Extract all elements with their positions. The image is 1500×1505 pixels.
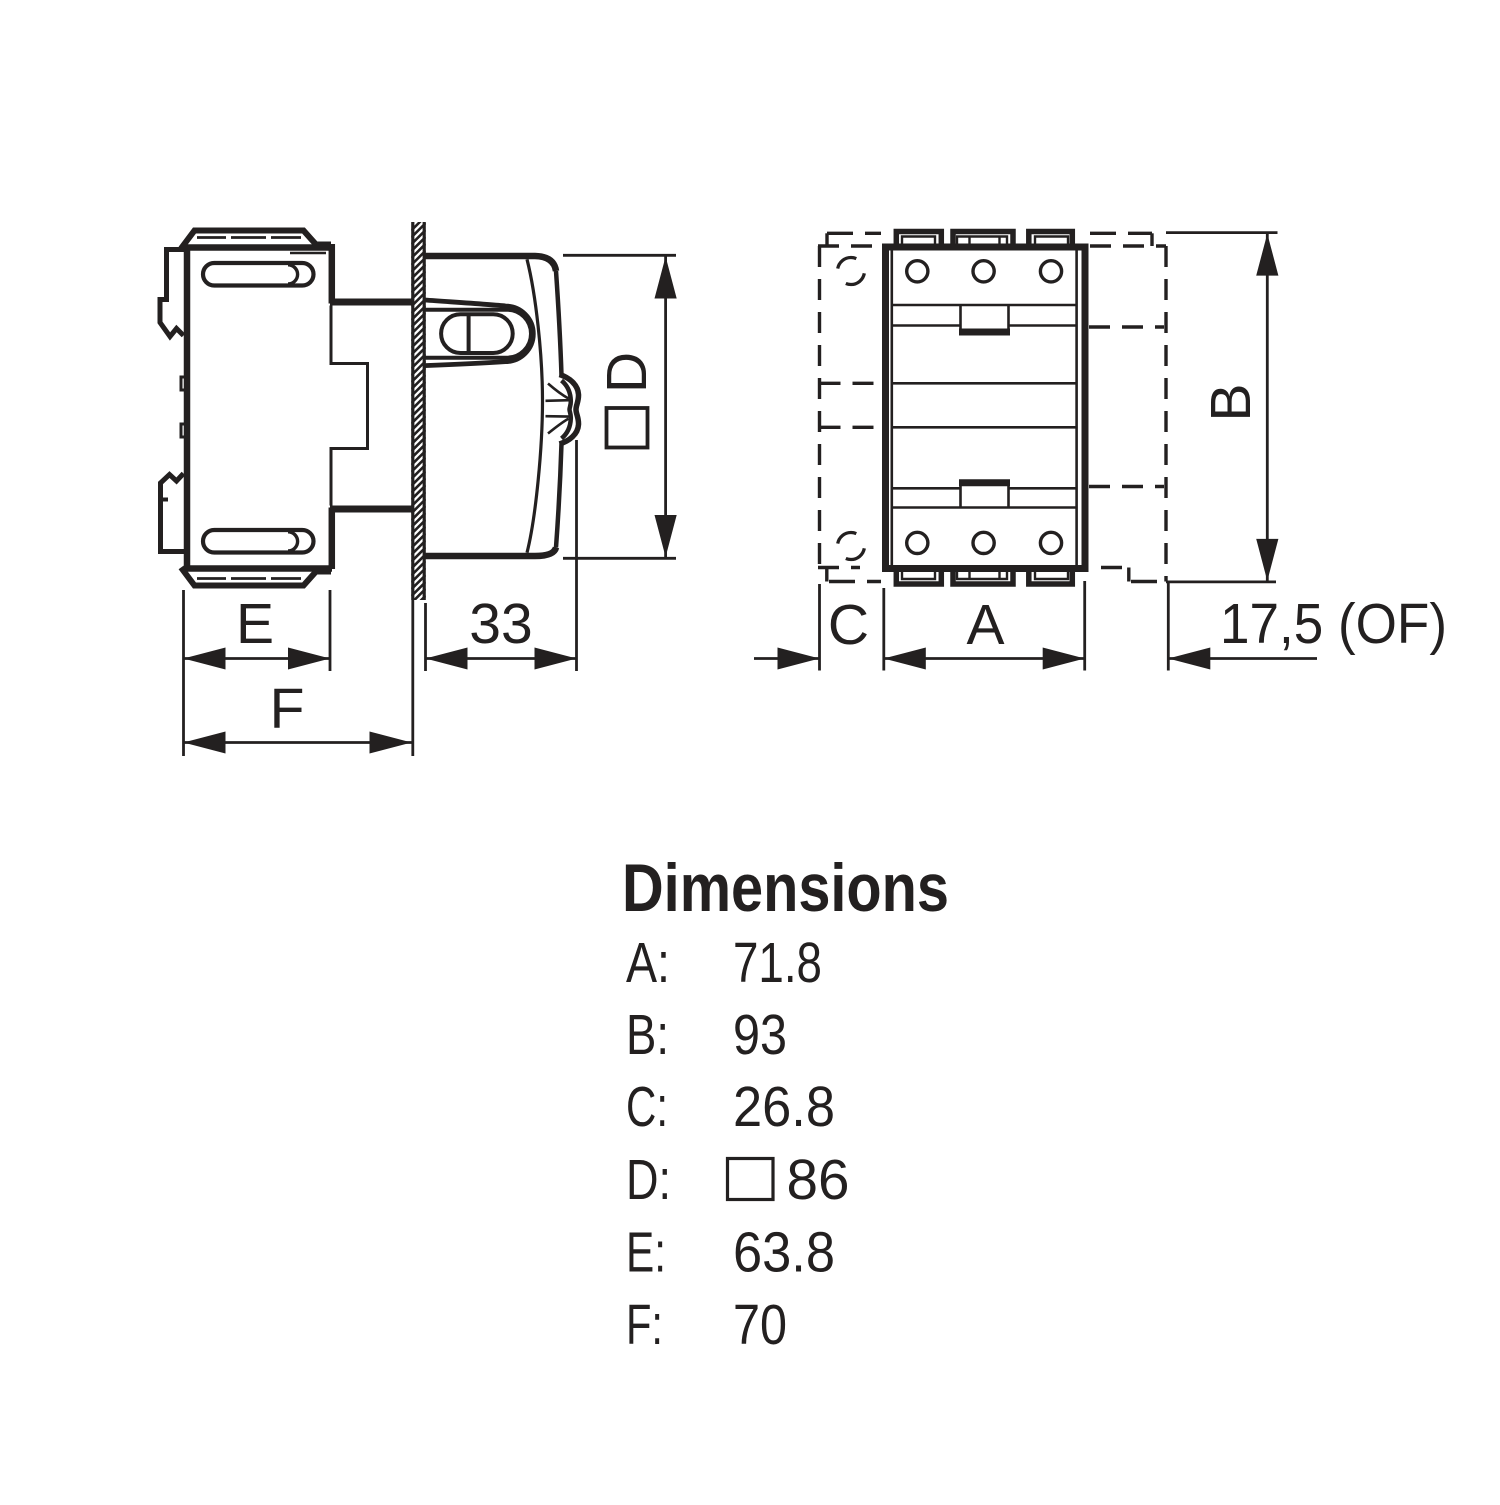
svg-text:33: 33 (469, 592, 532, 656)
svg-text:F: F (270, 677, 305, 741)
svg-text:86: 86 (787, 1148, 850, 1212)
svg-text:D:: D: (626, 1148, 671, 1212)
svg-text:93: 93 (733, 1003, 787, 1067)
svg-text:A:: A: (626, 931, 670, 995)
svg-text:A: A (966, 593, 1004, 657)
svg-text:E:: E: (626, 1221, 666, 1285)
svg-text:Dimensions: Dimensions (622, 850, 949, 926)
svg-text:B:: B: (626, 1003, 669, 1067)
svg-text:63.8: 63.8 (733, 1221, 835, 1285)
svg-text:26.8: 26.8 (733, 1075, 835, 1139)
svg-text:C:: C: (626, 1075, 668, 1139)
svg-text:70: 70 (733, 1293, 787, 1357)
svg-text:17,5 (OF): 17,5 (OF) (1220, 592, 1447, 656)
svg-text:F:: F: (626, 1293, 663, 1357)
svg-text:71.8: 71.8 (733, 931, 822, 995)
svg-text:B: B (1199, 383, 1263, 421)
svg-text:D: D (595, 352, 659, 393)
svg-text:E: E (236, 592, 274, 656)
svg-text:C: C (828, 593, 869, 657)
